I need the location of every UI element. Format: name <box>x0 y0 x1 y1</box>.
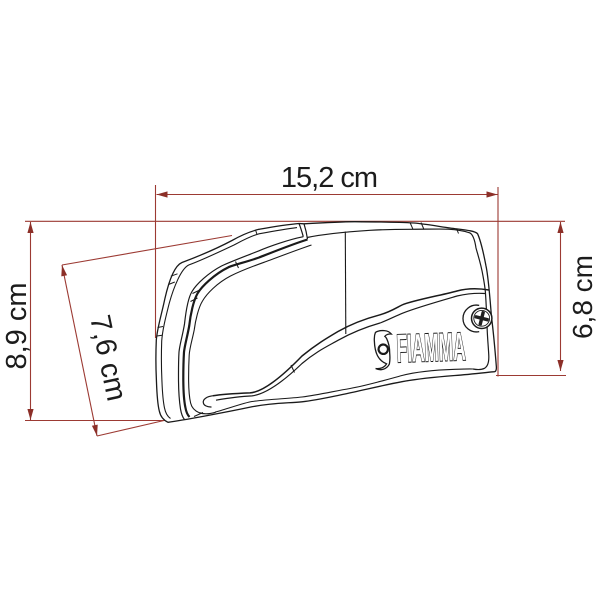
svg-text:8,9 cm: 8,9 cm <box>1 282 33 369</box>
svg-text:7,6 cm: 7,6 cm <box>83 312 132 404</box>
svg-text:15,2 cm: 15,2 cm <box>281 162 377 194</box>
svg-text:6,8 cm: 6,8 cm <box>567 255 598 339</box>
svg-text:FIAMMA: FIAMMA <box>396 325 466 371</box>
